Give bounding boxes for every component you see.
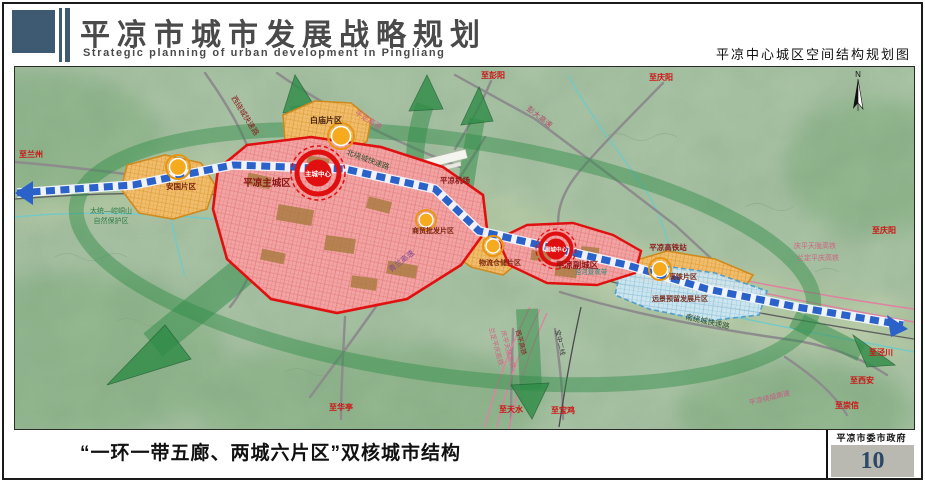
stamp-box: 平凉市委市政府 10 xyxy=(826,430,915,478)
label-hsr-district: 高铁片区 xyxy=(669,272,697,281)
map-title: 平凉中心城区空间结构规划图 xyxy=(716,44,911,63)
dest-lanzhou: 至兰州 xyxy=(19,149,43,159)
dest-tianshui: 至天水 xyxy=(499,404,524,414)
compass-north-label: N xyxy=(855,70,861,79)
dest-huating: 至华亭 xyxy=(329,402,353,412)
rail-qptl-right: 庆平天陇高铁 xyxy=(794,241,836,250)
dest-jingchuan: 至泾川 xyxy=(869,347,893,357)
sub-core-label: 副城中心 xyxy=(545,246,568,254)
dest-qingyang-right: 至庆阳 xyxy=(872,225,896,235)
dest-xian: 至西安 xyxy=(850,375,874,385)
structure-caption: “一环一带五廊、两城六片区”双核城市结构 xyxy=(80,430,461,478)
dest-qingyang-top: 至庆阳 xyxy=(649,72,673,82)
dest-chongxin: 至崇信 xyxy=(835,400,859,410)
planning-sheet: 平凉市城市发展战略规划 Strategic planning of urban … xyxy=(0,0,925,500)
label-logistics: 物流仓储片区 xyxy=(479,258,521,267)
map-canvas: 主城中心 副城中心 至兰州 至彭阳 至庆阳 至庆阳 至华亭 至天水 至宝鸡 至西… xyxy=(15,67,914,429)
main-city-core: 主城中心 xyxy=(291,146,345,200)
node-logistics xyxy=(483,236,503,256)
node-hsr xyxy=(649,258,671,280)
logo-square xyxy=(12,10,55,53)
node-trade xyxy=(416,210,436,230)
label-main-city: 平凉主城区 xyxy=(243,177,291,189)
agency-label: 平凉市委市政府 xyxy=(828,431,915,444)
planning-map: 主城中心 副城中心 至兰州 至彭阳 至庆阳 至庆阳 至华亭 至天水 至宝鸡 至西… xyxy=(14,66,915,430)
rail-ldpq-right: 兰定平庆高铁 xyxy=(797,253,839,262)
page-number: 10 xyxy=(831,445,914,477)
node-anguo xyxy=(166,155,190,179)
node-baimiao xyxy=(328,123,354,149)
page-frame: 平凉市城市发展战略规划 Strategic planning of urban … xyxy=(2,2,923,480)
label-nature-reserve-2: 自然保护区 xyxy=(94,216,129,225)
label-nature-reserve-1: 太统—崆峒山 xyxy=(90,206,132,215)
label-airport: 平凉机场 xyxy=(440,175,470,185)
dest-pengyang: 至彭阳 xyxy=(481,70,505,80)
label-reserved: 远景预留发展片区 xyxy=(652,294,708,303)
footer: “一环一带五廊、两城六片区”双核城市结构 平凉市委市政府 10 xyxy=(14,430,915,478)
dest-baoji: 至宝鸡 xyxy=(551,405,575,415)
logo-bar xyxy=(59,8,62,62)
main-core-label: 主城中心 xyxy=(305,169,332,178)
logo-bar xyxy=(65,8,70,62)
page-subtitle: Strategic planning of urban development … xyxy=(83,47,446,59)
label-jinghe-belt: 泾河景观带 xyxy=(575,268,608,276)
label-baimiao: 白庙片区 xyxy=(310,115,342,125)
label-hsr-station: 平凉高铁站 xyxy=(649,242,687,252)
label-trade: 商贸批发片区 xyxy=(412,226,454,235)
label-anguo: 安国片区 xyxy=(166,181,196,191)
